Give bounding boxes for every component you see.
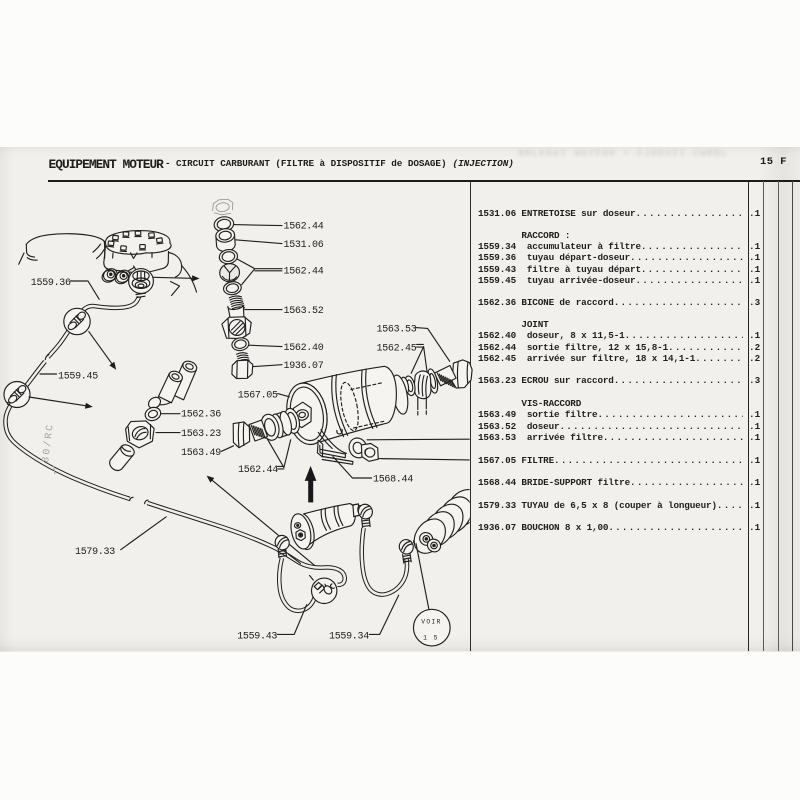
svg-text:80/RC: 80/RC bbox=[40, 422, 57, 463]
svg-text:1562.44: 1562.44 bbox=[238, 465, 278, 476]
svg-text:1562.44: 1562.44 bbox=[284, 222, 324, 233]
svg-text:1563.23: 1563.23 bbox=[181, 429, 221, 440]
svg-text:1579.33: 1579.33 bbox=[75, 547, 115, 558]
svg-text:1559.34: 1559.34 bbox=[329, 632, 369, 643]
svg-text:1936.07: 1936.07 bbox=[284, 361, 324, 372]
svg-text:1567.05: 1567.05 bbox=[238, 391, 278, 402]
svg-text:1563.53: 1563.53 bbox=[377, 325, 417, 336]
svg-text:1559.36: 1559.36 bbox=[31, 278, 71, 289]
svg-text:1563.52: 1563.52 bbox=[284, 306, 324, 317]
svg-text:1563.49: 1563.49 bbox=[181, 448, 221, 459]
svg-text:1562.44: 1562.44 bbox=[284, 267, 324, 278]
svg-text:VOIR: VOIR bbox=[421, 618, 441, 625]
svg-text:1559.45: 1559.45 bbox=[58, 372, 98, 383]
svg-text:1562.36: 1562.36 bbox=[181, 409, 221, 420]
svg-text:1562.40: 1562.40 bbox=[284, 343, 324, 354]
svg-text:1531.06: 1531.06 bbox=[284, 240, 324, 251]
svg-text:1562.45: 1562.45 bbox=[377, 343, 417, 354]
svg-text:1559.43: 1559.43 bbox=[237, 632, 277, 643]
svg-text:1 5: 1 5 bbox=[423, 635, 439, 642]
svg-text:1568.44: 1568.44 bbox=[373, 475, 413, 486]
